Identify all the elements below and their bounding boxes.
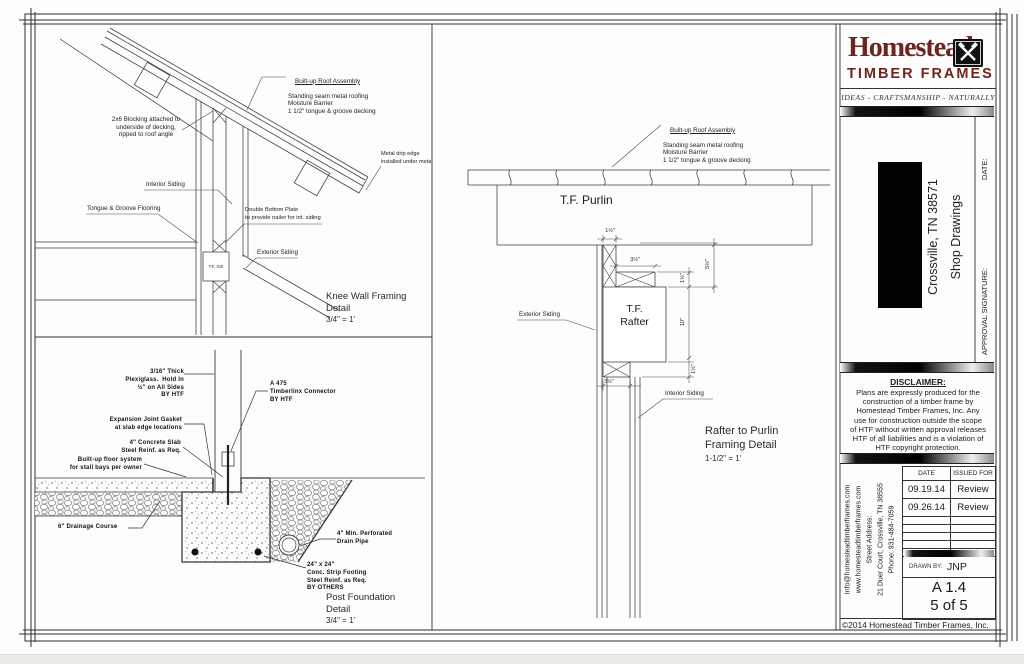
pf-floor-system-label: Built-up floor system for stall bays per… (70, 457, 142, 473)
contact-website: www.homesteadtimberframes.com (856, 460, 865, 620)
rp-purlin-label: T.F. Purlin (560, 193, 613, 207)
rp-dim-blocking-height: 1½" (680, 266, 686, 290)
revision-table: DATE ISSUED FOR 09.19.14 Review 09.26.14… (902, 466, 996, 557)
disclaimer-title: DISCLAIMER: (840, 377, 996, 387)
horizontal-scrollbar[interactable] (0, 654, 1024, 664)
revision-date-header: DATE (903, 467, 951, 480)
pf-footing-label: 24" x 24" Conc. Strip Footing Steel Rein… (307, 562, 367, 593)
disclaimer-body: Plans are expressly produced for the con… (840, 388, 996, 452)
revision-row-empty (903, 533, 995, 541)
rp-roof-assembly-rest: Standing seam metal roofing Moisture Bar… (663, 142, 751, 165)
sheet-number: A 1.4 (903, 579, 995, 596)
tagline-text: IDEAS - CRAFTSMANSHIP - NATURALLY (840, 93, 996, 102)
kw-detail-scale: 3/4" = 1' (326, 315, 355, 324)
rp-roof-assembly-title: Built-up Roof Assembly (670, 127, 735, 134)
kw-tongue-groove-label: Tongue & Groove Flooring (87, 205, 161, 213)
revision-row: 09.26.14 Review (903, 499, 995, 517)
drawn-by-value: JNP (947, 561, 967, 573)
contact-info: Info@homesteadtimberframes.com www.homes… (840, 466, 902, 618)
company-logo: Homestead TIMBER FRAMES (840, 24, 996, 88)
revision-row: 09.19.14 Review (903, 481, 995, 499)
rp-roof-assembly-label: Built-up Roof Assembly Standing seam met… (663, 119, 751, 180)
divider-gradient-bar-4 (904, 550, 994, 557)
kw-roof-assembly-title: Built-up Roof Assembly (295, 78, 360, 85)
revision-issued-header: ISSUED FOR (951, 467, 995, 480)
revision-date: 09.26.14 (903, 499, 951, 516)
contact-phone: Phone: 931-484-7059 (889, 460, 898, 620)
kw-detail-title: Knee Wall Framing Detail (326, 291, 406, 314)
rp-detail-title: Rafter to Purlin Framing Detail (705, 424, 778, 452)
kw-girt-label: T.F. Girt (203, 263, 229, 271)
revision-issued-for: Review (951, 499, 995, 516)
pf-detail-scale: 3/4" = 1' (326, 616, 355, 625)
rp-dim-below-rafter: 1½" (691, 357, 697, 381)
pf-drain-pipe-label: 4" Min. Perforated Drain Pipe (337, 531, 392, 547)
logo-word2: TIMBER FRAMES (847, 66, 994, 82)
pf-drainage-label: 6" Drainage Course (58, 524, 117, 532)
kw-exterior-siding-label: Exterior Siding (257, 249, 298, 257)
contact-street: 21 Duer Court, Crossville, TN 38555 (878, 460, 887, 620)
rp-dim-tenon: 1½" (597, 228, 623, 234)
copyright-row: ©2014 Homestead Timber Frames, Inc. (840, 618, 996, 631)
revision-row-empty (903, 525, 995, 533)
project-doc-type: Shop Drawings (949, 147, 965, 327)
rp-dim-purlin-to-rafter: 5½" (705, 252, 711, 276)
title-block: Homestead TIMBER FRAMES IDEAS - CRAFTSMA… (840, 24, 996, 630)
pf-connector-label: A 475 Timberlinx Connector BY HTF (270, 381, 336, 404)
rp-dim-rafter-depth: 10" (680, 310, 686, 334)
disclaimer-section: DISCLAIMER: Plans are expressly produced… (840, 375, 996, 453)
rp-detail-scale: 1-1/2" = 1' (705, 454, 741, 463)
pf-plexiglass-label: 3/16" Thick Plexiglass. Hold In ½" on Al… (125, 369, 184, 400)
kw-interior-siding-label: Interior Siding (146, 181, 185, 189)
region-dividers (35, 24, 975, 630)
drawing-sheet: Built-up Roof Assembly Standing seam met… (0, 0, 1024, 664)
rp-dim-stud-width: 3½" (594, 379, 624, 385)
rafter-purlin-linework (468, 170, 830, 618)
project-location: Crossville, TN 38571 (926, 147, 942, 327)
sheet-page-count: 5 of 5 (903, 597, 995, 614)
drawn-by-row: DRAWN BY: JNP (903, 558, 995, 578)
contact-email: Info@homesteadtimberframes.com (845, 460, 854, 620)
kw-double-bottom-plate-label: Double Bottom Plate to provide nailer fo… (245, 207, 321, 222)
kw-roof-assembly-rest: Standing seam metal roofing Moisture Bar… (288, 93, 376, 116)
drawn-by-label: DRAWN BY: (909, 564, 942, 570)
kw-roof-assembly-label: Built-up Roof Assembly Standing seam met… (288, 70, 376, 131)
date-label: DATE: (980, 140, 992, 180)
rp-exterior-siding-label: Exterior Siding (519, 311, 560, 319)
copyright-text: ©2014 Homestead Timber Frames, Inc. (842, 620, 989, 630)
rp-dim-blocking-width: 3½" (612, 257, 658, 263)
project-info: Crossville, TN 38571 Shop Drawings DATE:… (840, 117, 996, 362)
revision-issued-for: Review (951, 481, 995, 498)
divider-gradient-bar-1 (840, 106, 994, 117)
approval-signature-label: APPROVAL SIGNATURE: (980, 245, 992, 355)
kw-drip-edge-label: Metal drip edge installed under metal ro (381, 151, 431, 166)
rp-interior-siding-label: Interior Siding (665, 390, 704, 398)
sheet-id-box: DRAWN BY: JNP A 1.4 5 of 5 (902, 548, 996, 620)
rp-rafter-label: T.F. Rafter (603, 303, 666, 329)
pf-slab-label: 4" Concrete Slab Steel Reinf. as Req. (121, 440, 181, 456)
pf-expansion-joint-label: Expansion Joint Gasket at slab edge loca… (110, 417, 182, 433)
redacted-client-name (878, 162, 922, 308)
divider-gradient-bar-2 (840, 362, 994, 373)
revision-date: 09.19.14 (903, 481, 951, 498)
pf-detail-title: Post Foundation Detail (326, 592, 395, 615)
contact-street-label: Street Address: (867, 460, 876, 620)
revision-row-empty (903, 517, 995, 525)
tagline-bar: IDEAS - CRAFTSMANSHIP - NATURALLY (840, 88, 996, 107)
kw-blocking-label: 2x6 Blocking attached to underside of de… (85, 116, 207, 139)
